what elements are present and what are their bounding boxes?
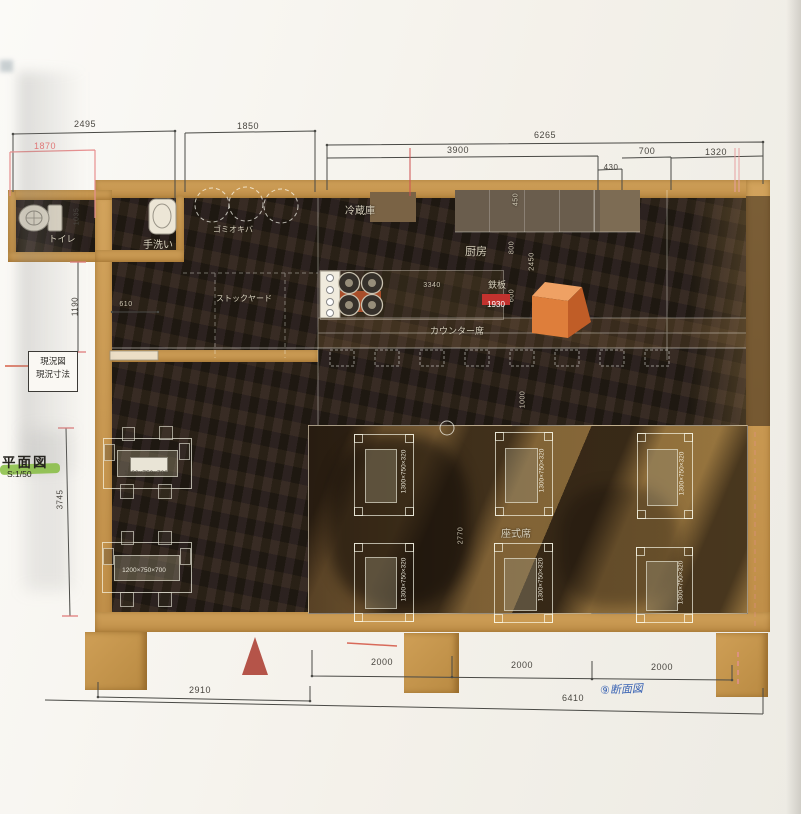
dim-top-6265: 6265 bbox=[515, 130, 575, 140]
pier-right bbox=[716, 633, 768, 697]
dim-left-1035: 1035 bbox=[74, 202, 81, 232]
stool bbox=[158, 484, 172, 499]
teppan-width-highlight: 1930 bbox=[482, 294, 510, 305]
low-table-size: 1300×750×320 bbox=[401, 545, 408, 615]
stool bbox=[120, 592, 134, 607]
dim-bottom-6410: 6410 bbox=[543, 693, 603, 703]
legend-box: 現況図 現況寸法 bbox=[28, 351, 78, 392]
dim-top-1870: 1870 bbox=[15, 141, 75, 151]
high-table-2-size: 1200×750×700 bbox=[102, 567, 186, 574]
room-label-fridge: 冷蔵庫 bbox=[330, 202, 390, 217]
scan-mark bbox=[0, 60, 13, 72]
room-label-handwash: 手洗い bbox=[133, 236, 183, 251]
dim-inner-2450: 2450 bbox=[527, 242, 536, 282]
dim-inner-610: 610 bbox=[106, 301, 146, 308]
dim-bottom-2000-a: 2000 bbox=[352, 657, 412, 667]
dim-top-3900: 3900 bbox=[428, 145, 488, 155]
dim-top-1850: 1850 bbox=[218, 121, 278, 131]
low-table-size: 1300×750×320 bbox=[678, 548, 685, 618]
right-strip-shading bbox=[690, 198, 746, 425]
dim-inner-2770: 2770 bbox=[458, 516, 465, 556]
dim-inner-450: 450 bbox=[513, 180, 520, 220]
room-label-garbage: ゴミオキバ bbox=[205, 224, 261, 235]
stool bbox=[158, 592, 172, 607]
scanned-floor-plan-sheet: 1200×750×700 1200×750×700 1300×750×320 1… bbox=[0, 0, 801, 814]
handwritten-note: ⑨断面図 bbox=[600, 680, 644, 698]
pier-middle bbox=[404, 633, 459, 693]
pier-left bbox=[85, 632, 147, 690]
dim-bottom-2910: 2910 bbox=[170, 685, 230, 695]
dim-top-2495: 2495 bbox=[55, 119, 115, 129]
stool bbox=[179, 443, 190, 460]
dim-inner-3340: 3340 bbox=[412, 282, 452, 289]
dim-inner-1000: 1000 bbox=[520, 380, 527, 420]
stool bbox=[180, 548, 191, 565]
room-label-stockyard: ストックヤード bbox=[206, 293, 282, 304]
room-label-teppan: 鉄板 bbox=[479, 278, 515, 291]
drawing-title: 平面図 bbox=[2, 451, 49, 471]
room-label-counter-seats: カウンター席 bbox=[414, 324, 500, 337]
room-label-zashiki: 座式席 bbox=[488, 525, 544, 540]
right-wall-shadow bbox=[746, 196, 770, 426]
drawing-scale: S:1/50 bbox=[7, 469, 32, 479]
dim-left-1190: 1190 bbox=[71, 287, 80, 327]
red-underline-mark bbox=[347, 643, 397, 646]
kitchen-back-counter-end bbox=[600, 190, 640, 232]
kitchen-back-counter bbox=[455, 190, 600, 232]
dim-top-700: 700 bbox=[617, 146, 677, 156]
dim-bottom-2000-b: 2000 bbox=[492, 660, 552, 670]
dim-teppan-1930: 1930 bbox=[487, 300, 505, 309]
scan-edge-shadow bbox=[786, 0, 801, 814]
scan-smudge bbox=[18, 72, 84, 472]
legend-line-2: 現況寸法 bbox=[29, 368, 77, 381]
dim-bottom-2000-c: 2000 bbox=[632, 662, 692, 672]
low-table-size: 1300×750×320 bbox=[679, 439, 686, 509]
room-label-kitchen: 厨房 bbox=[452, 243, 500, 259]
toilet-wing-top-wall bbox=[8, 190, 112, 200]
dim-top-430: 430 bbox=[586, 163, 636, 172]
stool bbox=[121, 531, 134, 545]
stool bbox=[120, 484, 134, 499]
kitchen-island bbox=[320, 270, 504, 320]
room-label-toilet: トイレ bbox=[40, 232, 84, 245]
dim-inner-800: 800 bbox=[509, 228, 516, 268]
legend-line-1: 現況図 bbox=[29, 355, 77, 368]
low-table-size: 1300×750×320 bbox=[538, 545, 545, 615]
dim-top-1320: 1320 bbox=[686, 147, 746, 157]
dim-left-3745: 3745 bbox=[56, 480, 65, 520]
high-table-1-size: 1200×750×700 bbox=[104, 470, 188, 477]
stool bbox=[158, 531, 172, 545]
low-table-size: 1300×750×320 bbox=[539, 436, 546, 506]
stool bbox=[104, 444, 115, 461]
top-wall bbox=[95, 180, 770, 198]
stool bbox=[103, 548, 114, 565]
entrance-arrow-icon bbox=[242, 637, 268, 675]
stockyard-bottom-wall bbox=[112, 350, 318, 362]
stool bbox=[159, 426, 173, 440]
counter-band bbox=[318, 318, 746, 348]
stool bbox=[122, 427, 135, 441]
low-table-size: 1300×750×320 bbox=[401, 437, 408, 507]
handwash-bottom-wall bbox=[95, 250, 184, 262]
